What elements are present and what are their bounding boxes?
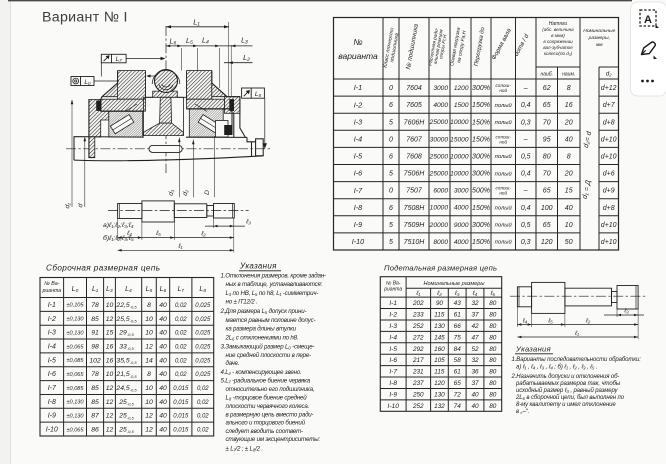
svg-text:Вариант № I: Вариант № I bbox=[42, 10, 128, 26]
svg-text:0,02: 0,02 bbox=[197, 414, 209, 420]
svg-text:7608: 7608 bbox=[406, 153, 422, 160]
svg-text:±0,085: ±0,085 bbox=[66, 358, 84, 364]
svg-text:12: 12 bbox=[145, 413, 153, 420]
svg-text:65: 65 bbox=[543, 102, 551, 109]
svg-text:80: 80 bbox=[489, 369, 497, 376]
svg-text:25000: 25000 bbox=[429, 153, 449, 160]
svg-text:ℓ₂: ℓ₂ bbox=[585, 318, 591, 325]
svg-text:0: 0 bbox=[389, 136, 393, 143]
svg-text:150%: 150% bbox=[472, 119, 490, 126]
svg-text:70: 70 bbox=[543, 119, 551, 126]
svg-text:ℓ₄: ℓ₄ bbox=[522, 317, 528, 324]
svg-text:4000: 4000 bbox=[454, 205, 469, 212]
svg-text:8: 8 bbox=[147, 302, 151, 309]
svg-text:6: 6 bbox=[389, 102, 393, 109]
svg-text:ℓ₃: ℓ₃ bbox=[245, 219, 251, 226]
svg-text:10000: 10000 bbox=[450, 153, 469, 160]
svg-text:ℓ₅: ℓ₅ bbox=[155, 230, 161, 237]
svg-text:5: 5 bbox=[389, 119, 393, 126]
svg-text:ℓ₅: ℓ₅ bbox=[547, 317, 553, 324]
svg-text:I-6: I-6 bbox=[354, 169, 362, 178]
svg-text:колесо(по d₂): колесо(по d₂) bbox=[544, 51, 573, 56]
svg-text:16: 16 bbox=[106, 357, 114, 364]
svg-text:I-8: I-8 bbox=[48, 399, 56, 406]
svg-text:0,025: 0,025 bbox=[195, 372, 211, 378]
svg-text:5: 5 bbox=[389, 222, 393, 229]
svg-text:231: 231 bbox=[412, 369, 424, 376]
svg-text:0: 0 bbox=[389, 188, 393, 195]
svg-text:но ± IT12/2 .: но ± IT12/2 . bbox=[226, 299, 258, 306]
svg-text:I-3: I-3 bbox=[389, 323, 397, 330]
svg-text:Сборочная размерная цепь: Сборочная размерная цепь bbox=[46, 264, 160, 273]
svg-text:d+12: d+12 bbox=[601, 85, 617, 92]
svg-text:40: 40 bbox=[159, 357, 167, 364]
svg-text:ℓ₂: ℓ₂ bbox=[436, 290, 442, 297]
svg-text:95: 95 bbox=[543, 136, 551, 143]
svg-text:0,02: 0,02 bbox=[175, 358, 187, 364]
svg-text:40: 40 bbox=[565, 136, 573, 143]
svg-text:32: 32 bbox=[471, 357, 479, 364]
svg-text:70: 70 bbox=[543, 171, 551, 178]
svg-text:ℓ₄: ℓ₄ bbox=[472, 290, 478, 297]
svg-text:I-4: I-4 bbox=[354, 134, 362, 143]
svg-text:20: 20 bbox=[564, 119, 573, 126]
svg-text:36: 36 bbox=[471, 369, 479, 376]
svg-text:0,4: 0,4 bbox=[521, 171, 531, 178]
svg-text:66: 66 bbox=[454, 323, 462, 330]
svg-text:ной: ной bbox=[499, 138, 507, 144]
svg-text:0,02: 0,02 bbox=[175, 344, 187, 350]
svg-text:80: 80 bbox=[489, 323, 497, 330]
svg-text:I-3: I-3 bbox=[354, 117, 362, 126]
svg-text:16: 16 bbox=[565, 102, 573, 109]
svg-text:d+10: d+10 bbox=[601, 239, 617, 246]
svg-text:I-10: I-10 bbox=[388, 403, 400, 410]
svg-text:0,5: 0,5 bbox=[521, 222, 531, 229]
svg-text:130: 130 bbox=[434, 323, 445, 330]
svg-text:0,015: 0,015 bbox=[173, 428, 189, 434]
svg-text:40: 40 bbox=[159, 413, 167, 420]
svg-text:ального и торцового биений: ального и торцового биений bbox=[226, 420, 306, 427]
svg-text:252: 252 bbox=[412, 403, 424, 410]
svg-text:I-10: I-10 bbox=[46, 427, 58, 434]
svg-text:L₈: L₈ bbox=[255, 91, 262, 98]
svg-text:16: 16 bbox=[106, 343, 114, 350]
svg-text:15000: 15000 bbox=[450, 136, 469, 143]
svg-text:10000: 10000 bbox=[450, 170, 469, 177]
svg-text:10000: 10000 bbox=[450, 119, 469, 126]
svg-text:86: 86 bbox=[91, 427, 99, 434]
svg-text:12: 12 bbox=[106, 316, 114, 323]
svg-text:1500: 1500 bbox=[454, 102, 469, 109]
svg-text:12: 12 bbox=[106, 399, 114, 406]
svg-text:3000: 3000 bbox=[433, 85, 448, 92]
svg-text:I-1: I-1 bbox=[354, 83, 362, 92]
svg-text:65: 65 bbox=[543, 222, 551, 229]
svg-text:I-5: I-5 bbox=[354, 152, 363, 161]
svg-text:43: 43 bbox=[454, 300, 462, 307]
svg-text:рабатываемых размеров так,: рабатываемых размеров так, чтобы bbox=[515, 381, 621, 387]
svg-text:3000: 3000 bbox=[454, 188, 469, 195]
svg-text:±0,065: ±0,065 bbox=[66, 344, 84, 350]
svg-text:d+10: d+10 bbox=[601, 153, 617, 160]
svg-text:80: 80 bbox=[489, 357, 497, 364]
svg-text:L₆: L₆ bbox=[170, 37, 177, 46]
svg-text:7605: 7605 bbox=[406, 102, 422, 109]
svg-text:0,015: 0,015 bbox=[173, 414, 189, 420]
svg-text:–: – bbox=[523, 188, 528, 195]
svg-text:d+8: d+8 bbox=[603, 205, 615, 212]
svg-text:I-5: I-5 bbox=[389, 346, 397, 353]
svg-text:40: 40 bbox=[471, 403, 479, 410]
svg-text:наим.: наим. bbox=[562, 72, 575, 78]
svg-text:0,025: 0,025 bbox=[195, 358, 211, 364]
svg-text:7507: 7507 bbox=[406, 188, 423, 195]
svg-text:ной: ной bbox=[499, 87, 507, 93]
svg-text:I-6: I-6 bbox=[48, 371, 56, 378]
svg-text:в сопряжении: в сопряжении bbox=[543, 39, 573, 44]
svg-text:I-1: I-1 bbox=[48, 302, 56, 309]
svg-text:150%: 150% bbox=[472, 102, 490, 109]
svg-text:40: 40 bbox=[159, 399, 167, 406]
svg-text:20000: 20000 bbox=[429, 222, 449, 229]
svg-text:б)ℓ₁;ℓ₂;ℓ₃;ℓ₅: б)ℓ₁;ℓ₂;ℓ₃;ℓ₅ bbox=[103, 234, 134, 242]
svg-text:0,025: 0,025 bbox=[195, 331, 211, 337]
svg-text:50: 50 bbox=[565, 239, 573, 246]
svg-text:5: 5 bbox=[389, 239, 393, 246]
svg-text:12: 12 bbox=[106, 427, 114, 434]
svg-text:L₃: L₃ bbox=[106, 286, 113, 293]
svg-text:I-2: I-2 bbox=[354, 100, 362, 109]
svg-text:полый: полый bbox=[495, 222, 513, 229]
svg-text:I-7: I-7 bbox=[389, 369, 397, 376]
svg-text:62: 62 bbox=[543, 85, 551, 92]
svg-text:0,02: 0,02 bbox=[175, 303, 187, 309]
svg-text:I-1: I-1 bbox=[389, 300, 397, 307]
svg-text:14: 14 bbox=[145, 357, 153, 364]
svg-text:300%: 300% bbox=[472, 85, 490, 92]
svg-text:25000: 25000 bbox=[429, 119, 449, 126]
svg-text:7510Н: 7510Н bbox=[404, 239, 426, 246]
svg-text:вал-зубчатое: вал-зубчатое bbox=[543, 45, 573, 50]
svg-text:мается равным половине допус-: мается равным половине допус- bbox=[226, 317, 316, 324]
svg-text:плоскости червячного колеса.: плоскости червячного колеса. bbox=[226, 403, 310, 410]
svg-text:4.L₂ - компенсирующее звено.: 4.L₂ - компенсирующее звено. bbox=[221, 369, 302, 376]
svg-text:8-му квалитету и имел откл: 8-му квалитету и имел отклонение bbox=[516, 402, 616, 408]
svg-text:±0,130: ±0,130 bbox=[66, 317, 84, 323]
svg-text:0,02: 0,02 bbox=[175, 331, 187, 337]
svg-text:252: 252 bbox=[412, 323, 424, 330]
svg-text:L₇: L₇ bbox=[116, 56, 123, 63]
svg-text:250: 250 bbox=[412, 391, 424, 398]
svg-text:145: 145 bbox=[434, 334, 445, 341]
svg-text:5.L₇ -радиальное биение червяк: 5.L₇ -радиальное биение червяка bbox=[221, 377, 311, 384]
svg-text:74: 74 bbox=[454, 403, 462, 410]
svg-text:132: 132 bbox=[434, 403, 445, 410]
svg-text:–: – bbox=[523, 136, 528, 143]
svg-text:ной: ной bbox=[499, 190, 507, 196]
svg-text:рианта: рианта bbox=[383, 287, 402, 293]
svg-text:4000: 4000 bbox=[454, 239, 469, 246]
svg-text:I-5: I-5 bbox=[48, 357, 56, 364]
svg-text:6000: 6000 bbox=[433, 188, 448, 195]
svg-text:I-7: I-7 bbox=[354, 186, 363, 195]
svg-text:0,025: 0,025 bbox=[195, 317, 211, 323]
svg-text:± L₇/2 ; ± L₈/2 .: ± L₇/2 ; ± L₈/2 . bbox=[226, 446, 263, 453]
svg-text:L₄: L₄ bbox=[202, 36, 209, 45]
svg-text:84: 84 bbox=[454, 346, 462, 353]
svg-text:0,025: 0,025 bbox=[195, 303, 211, 309]
svg-text:40: 40 bbox=[159, 385, 167, 392]
svg-text:80: 80 bbox=[489, 312, 497, 319]
svg-text:150%: 150% bbox=[472, 205, 490, 212]
svg-text:7509Н: 7509Н bbox=[404, 222, 426, 229]
svg-text:87: 87 bbox=[91, 413, 99, 420]
svg-text:115: 115 bbox=[434, 312, 445, 319]
svg-text:80: 80 bbox=[489, 403, 497, 410]
svg-text:37: 37 bbox=[471, 380, 479, 387]
svg-text:8: 8 bbox=[567, 85, 571, 92]
svg-text:L₅: L₅ bbox=[186, 36, 193, 45]
svg-text:150%: 150% bbox=[472, 239, 490, 246]
svg-text:0,02: 0,02 bbox=[175, 372, 187, 378]
svg-text:6: 6 bbox=[389, 205, 393, 212]
svg-text:2.Назначить допуски и откло: 2.Назначить допуски и отклонения об- bbox=[511, 374, 620, 380]
svg-text:I-4: I-4 bbox=[48, 343, 56, 350]
svg-text:L₃ по НВ, L₅ по h8, L₁ -симмет: L₃ по НВ, L₅ по h8, L₁ -симметрич- bbox=[226, 290, 319, 297]
svg-text:полый: полый bbox=[495, 153, 513, 160]
svg-text:120: 120 bbox=[541, 239, 553, 246]
svg-text:10: 10 bbox=[106, 371, 114, 378]
svg-text:10: 10 bbox=[145, 330, 153, 337]
svg-text:ℓ₁: ℓ₁ bbox=[415, 290, 420, 297]
svg-text:±0,065: ±0,065 bbox=[66, 427, 84, 433]
svg-text:91: 91 bbox=[91, 330, 99, 337]
svg-text:85: 85 bbox=[91, 316, 99, 323]
svg-text:300%: 300% bbox=[472, 153, 490, 160]
svg-text:0,02: 0,02 bbox=[175, 317, 187, 323]
svg-text:6: 6 bbox=[389, 153, 393, 160]
svg-text:0,02: 0,02 bbox=[197, 400, 209, 406]
svg-text:±0,085: ±0,085 bbox=[66, 386, 84, 392]
svg-text:202: 202 bbox=[412, 300, 424, 307]
svg-text:№ Ва-: № Ва- bbox=[44, 281, 59, 287]
svg-text:(абс. величина: (абс. величина bbox=[542, 27, 574, 32]
svg-text:L₈: L₈ bbox=[199, 286, 206, 293]
svg-text:1200: 1200 bbox=[454, 85, 469, 92]
svg-text:2.Для размера L₅ допуск прин: 2.Для размера L₅ допуск прини- bbox=[220, 308, 307, 315]
svg-text:варианта: варианта bbox=[338, 51, 378, 61]
svg-text:мм: мм bbox=[596, 43, 603, 48]
svg-text:217: 217 bbox=[412, 357, 424, 364]
svg-text:3.Замыкающий размер L₀ -смещ: 3.Замыкающий размер L₀ -смеще- bbox=[221, 344, 315, 351]
svg-text:1.Отклонения размеров, кроме з: 1.Отклонения размеров, кроме задан- bbox=[221, 273, 326, 280]
svg-text:12: 12 bbox=[145, 343, 153, 350]
svg-text:85: 85 bbox=[91, 385, 99, 392]
svg-text:I-7: I-7 bbox=[48, 385, 57, 392]
svg-text:4000: 4000 bbox=[433, 102, 448, 109]
svg-text:37: 37 bbox=[471, 312, 479, 319]
svg-text:±0,105: ±0,105 bbox=[66, 303, 84, 309]
svg-text:в „–“.: в „–“. bbox=[516, 409, 529, 415]
svg-text:25000: 25000 bbox=[429, 170, 449, 177]
svg-text:A: A bbox=[644, 14, 652, 26]
svg-text:Номинальные размеры: Номинальные размеры bbox=[424, 281, 485, 287]
svg-text:Номинальные: Номинальные bbox=[583, 28, 615, 34]
svg-text:d+10: d+10 bbox=[601, 222, 617, 229]
svg-text:15: 15 bbox=[106, 330, 114, 337]
svg-text:7506Н: 7506Н bbox=[404, 171, 426, 178]
svg-text:1.Варианты последовательности: 1.Варианты последовательности обработки: bbox=[512, 357, 642, 363]
svg-text:292: 292 bbox=[412, 346, 424, 353]
svg-text:120: 120 bbox=[434, 380, 445, 387]
svg-text:8000: 8000 bbox=[433, 239, 448, 246]
svg-text:10: 10 bbox=[565, 222, 573, 229]
svg-text:40: 40 bbox=[159, 343, 167, 350]
svg-text:2L₆ с отклонениями по h8.: 2L₆ с отклонениями по h8. bbox=[225, 334, 299, 341]
svg-text:0,02: 0,02 bbox=[197, 428, 209, 434]
svg-text:L₁: L₁ bbox=[193, 18, 200, 27]
svg-text:ℓ₅: ℓ₅ bbox=[489, 290, 495, 297]
svg-text:2L₆ в сборочной цепи, был вып: 2L₆ в сборочной цепи, был выполнен по bbox=[515, 394, 625, 401]
svg-text:d+7: d+7 bbox=[603, 102, 616, 109]
svg-text:0: 0 bbox=[389, 85, 393, 92]
svg-text:105: 105 bbox=[434, 357, 445, 364]
svg-text:d₂: d₂ bbox=[606, 72, 612, 78]
svg-text:10: 10 bbox=[145, 385, 153, 392]
svg-text:L₀: L₀ bbox=[84, 79, 91, 86]
svg-text:±0,065: ±0,065 bbox=[66, 372, 84, 378]
svg-text:I-6: I-6 bbox=[389, 357, 397, 364]
svg-text:исходный размер ℓ₃ , равный: исходный размер ℓ₃ , равный размеру bbox=[516, 387, 619, 394]
svg-text:даче.: даче. bbox=[226, 360, 240, 367]
svg-text:40: 40 bbox=[159, 302, 167, 309]
svg-text:78: 78 bbox=[91, 302, 99, 309]
svg-text:300%: 300% bbox=[472, 171, 490, 178]
svg-text:I-8: I-8 bbox=[354, 203, 362, 212]
svg-text:I-2: I-2 bbox=[48, 316, 56, 323]
svg-text:полый: полый bbox=[495, 239, 513, 246]
svg-text:полый: полый bbox=[495, 102, 513, 109]
svg-text:12: 12 bbox=[106, 385, 114, 392]
svg-text:7508Н: 7508Н bbox=[404, 205, 426, 212]
svg-text:61: 61 bbox=[454, 369, 462, 376]
svg-text:78: 78 bbox=[91, 371, 99, 378]
svg-text:в мкм): в мкм) bbox=[551, 33, 565, 38]
svg-text:L₂: L₂ bbox=[243, 53, 250, 62]
svg-text:237: 237 bbox=[412, 380, 424, 387]
svg-text:5: 5 bbox=[389, 171, 393, 178]
svg-text:9000: 9000 bbox=[454, 222, 469, 229]
svg-text:d+8: d+8 bbox=[603, 119, 615, 126]
svg-text:L₆: L₆ bbox=[160, 286, 167, 293]
svg-text:0,4: 0,4 bbox=[521, 102, 531, 109]
svg-text:Подетальная размерная цепь: Подетальная размерная цепь bbox=[384, 264, 497, 273]
svg-text:0,4: 0,4 bbox=[521, 205, 531, 212]
svg-text:80: 80 bbox=[489, 346, 497, 353]
svg-text:160: 160 bbox=[434, 346, 445, 353]
svg-text:72: 72 bbox=[454, 391, 462, 398]
svg-text:I-8: I-8 bbox=[389, 380, 397, 387]
svg-text:233: 233 bbox=[412, 312, 424, 319]
svg-text:ствующие им эксцентриситеты:: ствующие им эксцентриситеты: bbox=[226, 436, 321, 443]
svg-text:10000: 10000 bbox=[430, 205, 449, 212]
svg-text:8: 8 bbox=[147, 371, 151, 378]
svg-text:0,015: 0,015 bbox=[173, 386, 189, 392]
svg-text:L₁: L₁ bbox=[92, 286, 99, 293]
svg-text:0,3: 0,3 bbox=[521, 239, 531, 246]
svg-text:ние средней плоскости в пере: ние средней плоскости в пере- bbox=[226, 352, 312, 359]
svg-text:300%: 300% bbox=[472, 222, 490, 229]
svg-text:47: 47 bbox=[471, 334, 479, 341]
svg-text:d+10: d+10 bbox=[601, 136, 617, 143]
svg-text:0,015: 0,015 bbox=[173, 400, 189, 406]
svg-text:15: 15 bbox=[565, 188, 573, 195]
svg-text:относительно его подшипника,: относительно его подшипника, bbox=[226, 386, 315, 393]
svg-text:10: 10 bbox=[145, 399, 153, 406]
svg-text:80: 80 bbox=[543, 153, 551, 160]
svg-text:ℓ₃: ℓ₃ bbox=[623, 308, 629, 315]
svg-text:100: 100 bbox=[541, 205, 553, 212]
svg-text:52: 52 bbox=[471, 346, 479, 353]
svg-text:а)ℓ₁;ℓ₂;ℓ₃;ℓ₄: а)ℓ₁;ℓ₂;ℓ₃;ℓ₄ bbox=[103, 222, 134, 229]
svg-text:L₇: L₇ bbox=[178, 286, 185, 293]
svg-text:полый: полый bbox=[495, 170, 513, 177]
svg-text:40: 40 bbox=[565, 205, 573, 212]
svg-text:L₅: L₅ bbox=[146, 286, 153, 293]
svg-text:I-9: I-9 bbox=[354, 220, 362, 229]
svg-text:8: 8 bbox=[567, 153, 571, 160]
svg-text:в размерную цепь вместо ради-: в размерную цепь вместо ради- bbox=[226, 411, 314, 418]
svg-text:0,3: 0,3 bbox=[521, 119, 531, 126]
svg-text:I-2: I-2 bbox=[389, 312, 397, 319]
svg-text:40: 40 bbox=[471, 391, 479, 398]
svg-text:80: 80 bbox=[489, 300, 497, 307]
svg-text:ка размера длины втулки: ка размера длины втулки bbox=[226, 326, 297, 333]
svg-text:40: 40 bbox=[159, 330, 167, 337]
svg-text:I-9: I-9 bbox=[48, 413, 56, 420]
svg-text:±0,130: ±0,130 bbox=[66, 330, 84, 336]
svg-text:65: 65 bbox=[454, 380, 462, 387]
svg-text:150%: 150% bbox=[472, 136, 490, 143]
svg-text:–: – bbox=[523, 85, 528, 92]
svg-text:115: 115 bbox=[434, 369, 445, 376]
svg-text:58: 58 bbox=[454, 357, 462, 364]
svg-text:Указания: Указания bbox=[239, 262, 277, 271]
svg-text:а) ℓ₁ , ℓ₄ , ℓ₃ , ℓ₄ ; б): а) ℓ₁ , ℓ₄ , ℓ₃ , ℓ₄ ; б) ℓ₁ , ℓ₂ , ℓ₃ ,… bbox=[516, 364, 597, 371]
svg-text:42: 42 bbox=[471, 323, 479, 330]
svg-text:80: 80 bbox=[489, 391, 497, 398]
svg-text:0,025: 0,025 bbox=[195, 344, 211, 350]
svg-text:7607: 7607 bbox=[406, 136, 423, 143]
svg-text:полый: полый bbox=[495, 119, 513, 126]
svg-text:12: 12 bbox=[145, 427, 153, 434]
svg-text:наиб.: наиб. bbox=[540, 72, 553, 78]
svg-text:размеры,: размеры, bbox=[588, 36, 610, 41]
svg-text:10: 10 bbox=[145, 316, 153, 323]
svg-text:80: 80 bbox=[489, 334, 497, 341]
svg-text:85: 85 bbox=[91, 399, 99, 406]
svg-text:130: 130 bbox=[434, 391, 445, 398]
svg-text:61: 61 bbox=[454, 312, 462, 319]
svg-text:98: 98 bbox=[91, 343, 99, 350]
svg-text:40: 40 bbox=[159, 316, 167, 323]
svg-text:Указания: Указания bbox=[515, 345, 551, 354]
svg-text:102: 102 bbox=[89, 357, 101, 364]
svg-text:I-4: I-4 bbox=[389, 334, 397, 341]
svg-text:7604: 7604 bbox=[406, 85, 422, 92]
svg-text:90: 90 bbox=[436, 300, 444, 307]
